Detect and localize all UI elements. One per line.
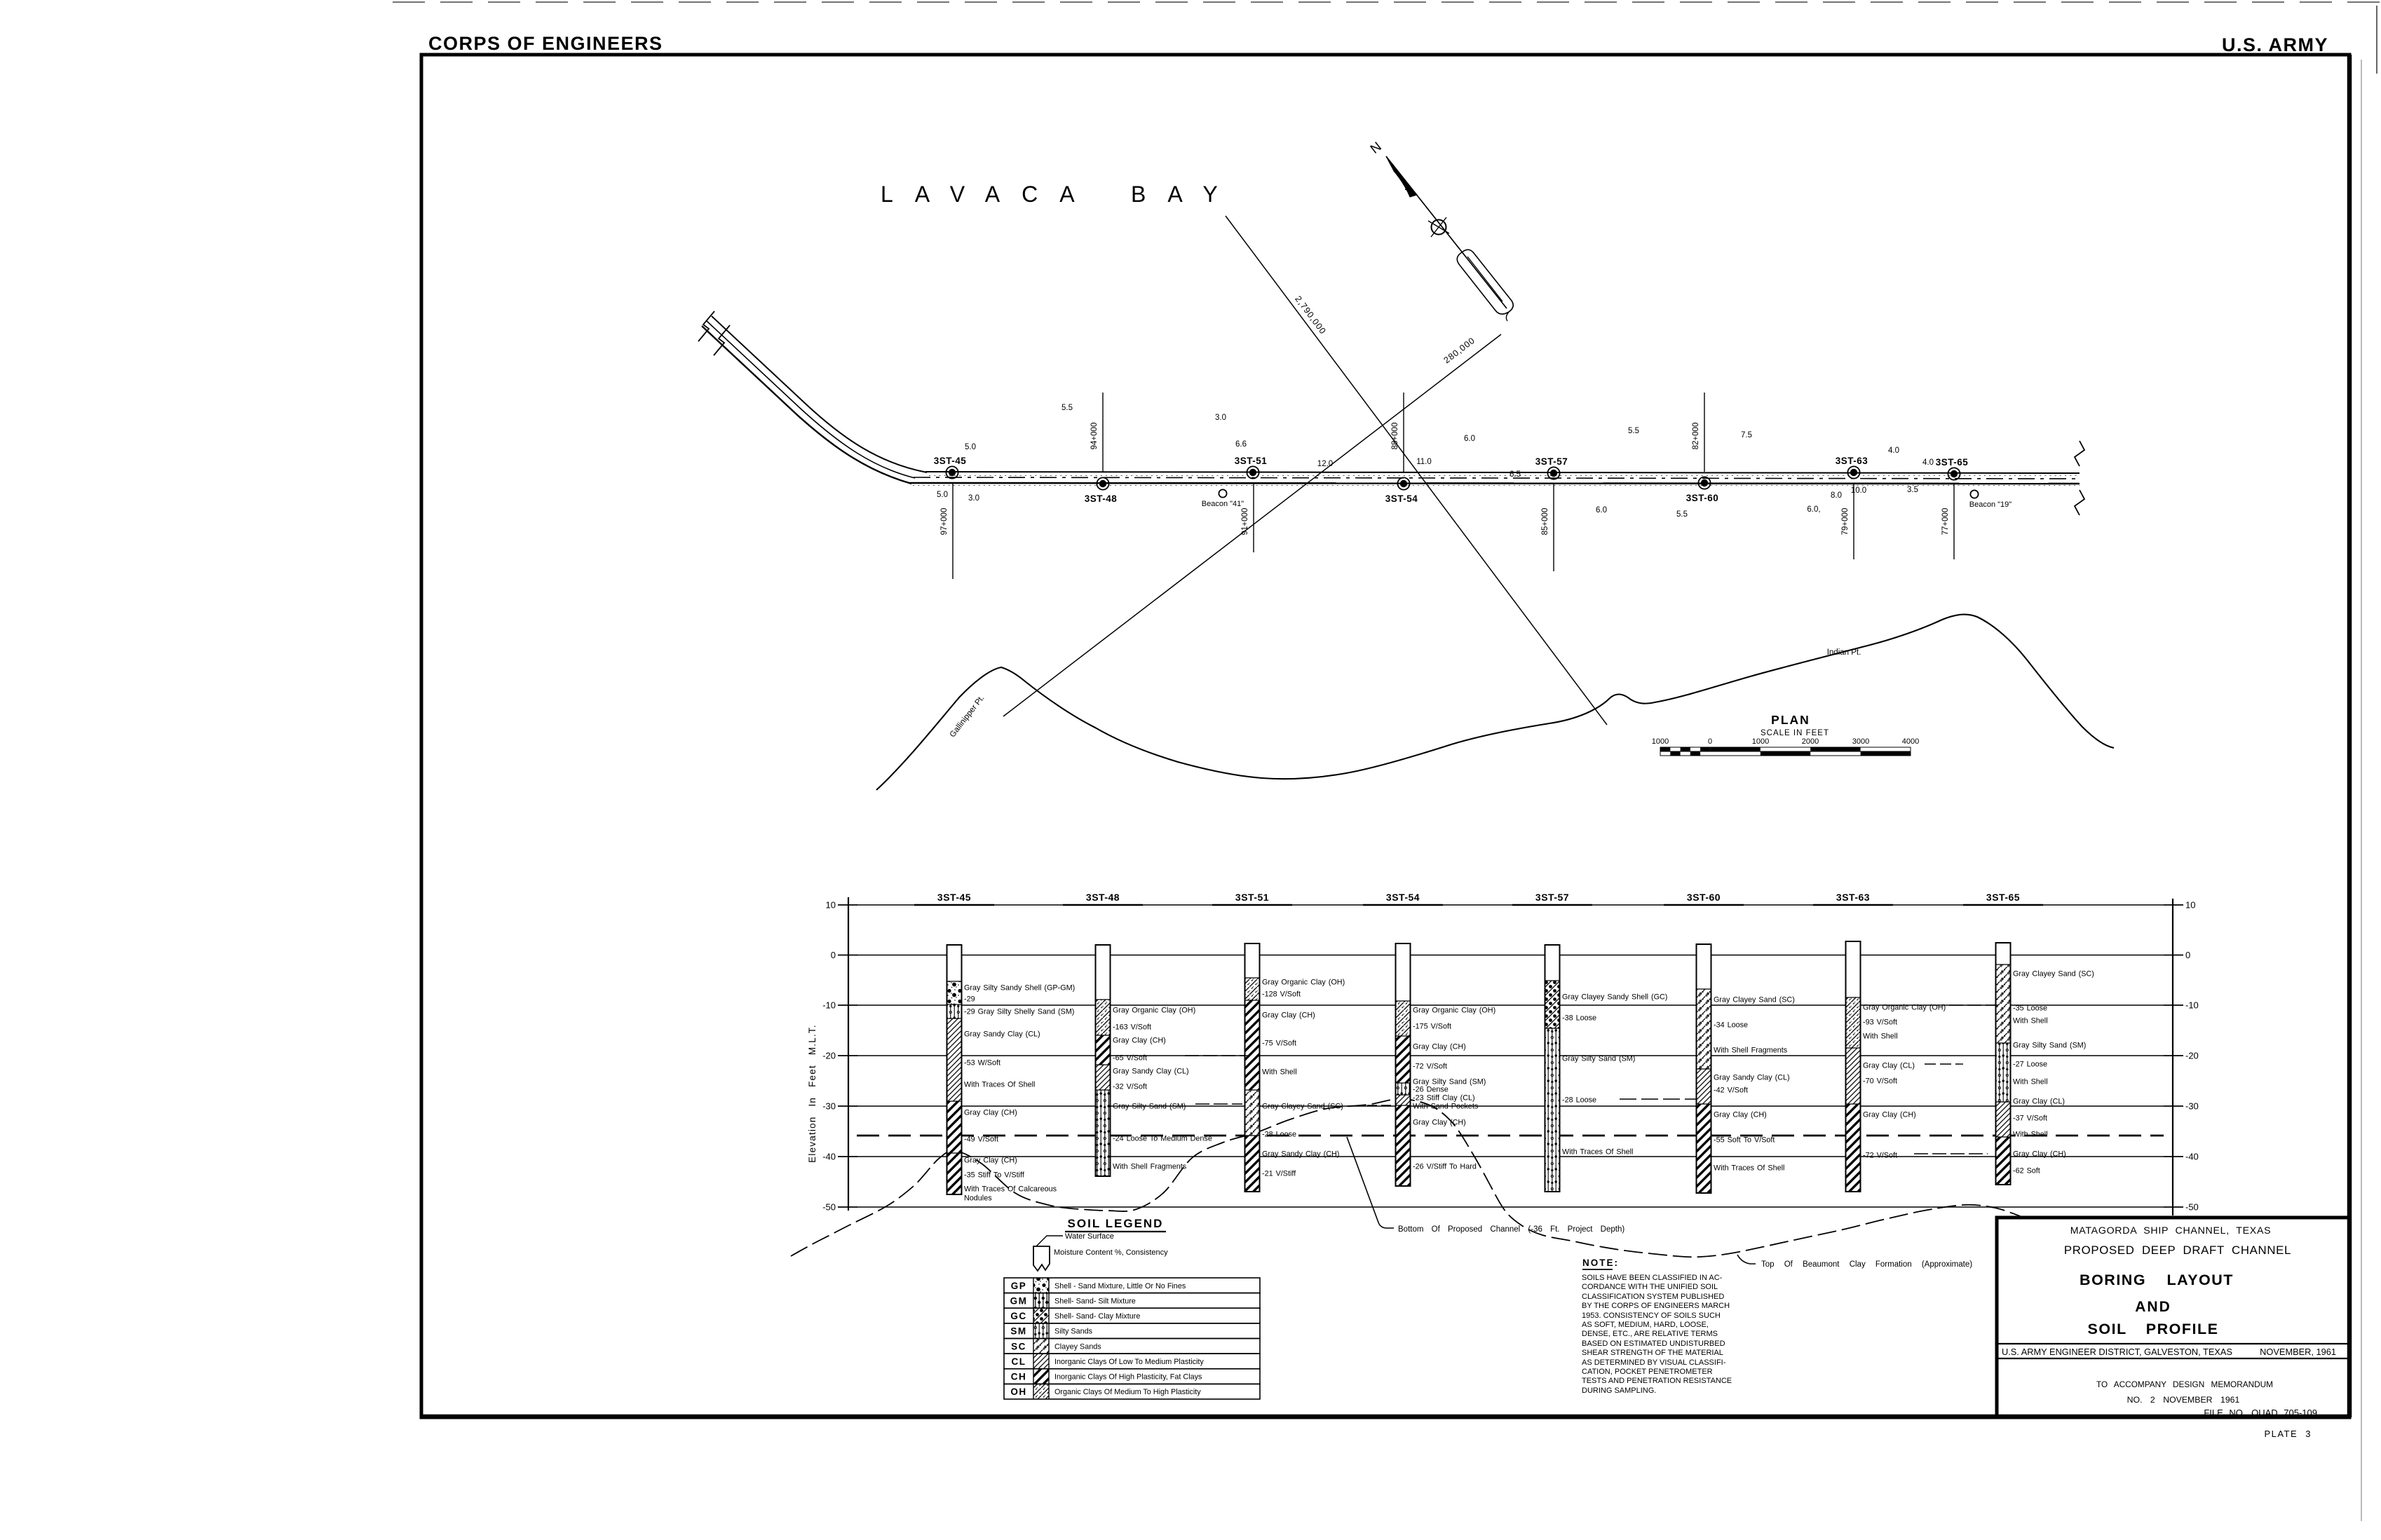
svg-text:79+000: 79+000 [1841,508,1850,536]
svg-text:3ST-45: 3ST-45 [937,892,971,903]
svg-text:TO ACCOMPANY DESIGN MEMO: TO ACCOMPANY DESIGN MEMORANDUM [2096,1379,2273,1389]
svg-text:3ST-57: 3ST-57 [1535,456,1568,467]
svg-text:-35 Loose: -35 Loose [2013,1004,2047,1013]
svg-text:11.0: 11.0 [1416,458,1432,466]
svg-text:-37 V/Soft: -37 V/Soft [2013,1115,2047,1123]
svg-text:Shell- Sand- Clay Mixture: Shell- Sand- Clay Mixture [1054,1312,1140,1321]
svg-text:FILE NO. QUAD 705-109: FILE NO. QUAD 705-109 [2204,1408,2317,1418]
svg-text:-24 Loose To Medium Dense: -24 Loose To Medium Dense [1113,1135,1212,1143]
svg-text:-38 Loose: -38 Loose [1562,1014,1596,1023]
svg-text:Gray Organic Clay (OH): Gray Organic Clay (OH) [1863,1004,1946,1012]
svg-text:GC: GC [1010,1311,1026,1321]
svg-text:CL: CL [1012,1356,1026,1367]
svg-text:AS DETERMINED BY VISUAL CLASSI: AS DETERMINED BY VISUAL CLASSIFI- [1582,1358,1726,1367]
svg-text:NOVEMBER, 1961: NOVEMBER, 1961 [2260,1347,2336,1357]
svg-text:Gray Clay (CH): Gray Clay (CH) [1413,1119,1466,1127]
svg-text:-10: -10 [2185,1000,2199,1011]
svg-text:5.0: 5.0 [965,443,976,451]
svg-text:-35 Stiff To V/Stiff: -35 Stiff To V/Stiff [964,1171,1025,1180]
svg-text:AND: AND [2135,1299,2171,1315]
svg-text:-20: -20 [822,1051,836,1061]
svg-text:-128 V/Soft: -128 V/Soft [1262,990,1301,999]
svg-text:5.0: 5.0 [937,491,948,499]
svg-text:5.5: 5.5 [1061,404,1073,412]
svg-text:-21 V/Stiff: -21 V/Stiff [1262,1170,1296,1178]
svg-text:Gray Sandy Clay (CH): Gray Sandy Clay (CH) [1262,1150,1339,1159]
svg-text:PROPOSED DEEP DRAFT CHANNEL: PROPOSED DEEP DRAFT CHANNEL [2064,1243,2291,1257]
svg-text:91+000: 91+000 [1241,508,1249,536]
svg-text:-53 W/Soft: -53 W/Soft [964,1059,1000,1068]
svg-text:With Shell: With Shell [2013,1131,2048,1139]
svg-text:-29: -29 [964,995,975,1004]
svg-text:NO. 2 NOVEMBER 1961: NO. 2 NOVEMBER 1961 [2127,1395,2240,1405]
svg-text:CORPS OF ENGINEERS: CORPS OF ENGINEERS [428,33,663,54]
svg-text:Organic Clays Of Medium: Organic Clays Of Medium To High Plastici… [1054,1388,1201,1396]
svg-text:-26 V/Stiff To Hard: -26 V/Stiff To Hard [1413,1163,1477,1171]
svg-text:-70 V/Soft: -70 V/Soft [1863,1077,1897,1086]
svg-text:-72 V/Soft: -72 V/Soft [1413,1063,1447,1071]
svg-text:3ST-45: 3ST-45 [934,456,967,466]
svg-text:Gray Clay (CH): Gray Clay (CH) [1262,1011,1315,1020]
svg-text:3ST-63: 3ST-63 [1836,456,1868,466]
svg-text:4000: 4000 [1902,737,1919,746]
svg-text:-28 Loose: -28 Loose [1262,1131,1296,1139]
svg-text:3.0: 3.0 [968,494,979,503]
svg-text:10.0: 10.0 [1851,486,1866,495]
svg-text:Shell - Sand Mixture, Little: Shell - Sand Mixture, Little Or No Fines [1054,1282,1186,1290]
svg-text:1000: 1000 [1652,737,1669,746]
svg-text:-65 V/Soft: -65 V/Soft [1113,1054,1147,1063]
svg-text:0: 0 [831,950,836,960]
svg-text:SC: SC [1011,1341,1026,1351]
svg-text:1000: 1000 [1752,737,1769,746]
svg-text:CH: CH [1011,1372,1027,1382]
svg-text:DURING SAMPLING.: DURING SAMPLING. [1582,1386,1656,1395]
svg-text:-50: -50 [822,1202,836,1213]
svg-text:PLATE 3: PLATE 3 [2264,1429,2312,1439]
svg-text:SOIL PROFILE: SOIL PROFILE [2088,1321,2219,1337]
svg-text:AS SOFT, MEDIUM, HARD, LOOS: AS SOFT, MEDIUM, HARD, LOOSE, [1582,1321,1709,1329]
svg-text:BY THE CORPS OF ENGINEERS MARC: BY THE CORPS OF ENGINEERS MARCH [1582,1302,1730,1310]
svg-text:3ST-51: 3ST-51 [1235,892,1269,903]
svg-text:Gray Silty Sand (SM): Gray Silty Sand (SM) [1113,1103,1186,1111]
svg-text:LAVACA: LAVACA [881,182,1097,207]
svg-text:10: 10 [2185,900,2195,911]
svg-text:-30: -30 [2185,1101,2199,1112]
svg-text:3ST-48: 3ST-48 [1085,493,1118,504]
svg-text:Gray Clayey Sandy Shell (G: Gray Clayey Sandy Shell (GC) [1562,993,1667,1002]
svg-text:3ST-60: 3ST-60 [1687,892,1721,903]
svg-text:With Shell: With Shell [1262,1068,1297,1077]
svg-text:8.0: 8.0 [1831,491,1842,500]
svg-text:Gray Organic Clay (OH): Gray Organic Clay (OH) [1262,979,1345,987]
svg-text:-29 Gray Silty Shelly Sand: -29 Gray Silty Shelly Sand (SM) [964,1008,1074,1016]
svg-text:Gray Clay (CH): Gray Clay (CH) [1413,1043,1466,1051]
svg-text:-20: -20 [2185,1051,2199,1061]
svg-text:94+000: 94+000 [1090,423,1099,450]
svg-text:12.0: 12.0 [1317,460,1333,468]
svg-text:Gray Clay (CH): Gray Clay (CH) [2013,1150,2066,1159]
svg-text:Gray Sandy Clay (CL): Gray Sandy Clay (CL) [1113,1068,1189,1076]
svg-text:-40: -40 [822,1152,836,1162]
svg-text:Gray Clayey Sand (SC): Gray Clayey Sand (SC) [1714,996,1795,1004]
svg-text:Gray Organic Clay (OH): Gray Organic Clay (OH) [1413,1007,1495,1015]
svg-text:BASED ON ESTIMATED UNDISTUR: BASED ON ESTIMATED UNDISTURBED [1582,1340,1725,1348]
svg-text:0: 0 [2185,950,2190,960]
svg-text:Beacon "19": Beacon "19" [1969,500,2012,509]
svg-text:4.0: 4.0 [1888,447,1899,455]
svg-text:-23 Stiff Clay (CL): -23 Stiff Clay (CL) [1413,1094,1475,1103]
svg-text:5.5: 5.5 [1628,427,1639,435]
svg-text:3ST-63: 3ST-63 [1836,892,1870,903]
svg-text:Gray Clay (CH): Gray Clay (CH) [1714,1111,1767,1119]
svg-text:MATAGORDA SHIP CHANNEL, TEXA: MATAGORDA SHIP CHANNEL, TEXAS [2070,1225,2272,1236]
svg-text:GM: GM [1010,1295,1028,1306]
svg-text:With Traces Of Shell: With Traces Of Shell [964,1081,1035,1089]
svg-text:-50: -50 [2185,1202,2199,1213]
svg-text:-28 Loose: -28 Loose [1562,1096,1596,1105]
svg-text:Gray Organic Clay (OH): Gray Organic Clay (OH) [1113,1007,1195,1015]
svg-text:Gray Sandy Clay (CL): Gray Sandy Clay (CL) [964,1030,1040,1039]
svg-text:Gray Clay (CL): Gray Clay (CL) [1863,1062,1915,1070]
svg-text:10: 10 [826,900,836,911]
svg-text:TESTS AND PENETRATION RESISTAN: TESTS AND PENETRATION RESISTANCE [1582,1377,1732,1385]
svg-text:1953. CONSISTENCY OF SOILS SUC: 1953. CONSISTENCY OF SOILS SUCH [1582,1311,1721,1320]
svg-text:6.0,: 6.0, [1807,505,1820,514]
svg-text:SHEAR STRENGTH OF THE MATERIAL: SHEAR STRENGTH OF THE MATERIAL [1582,1349,1723,1357]
svg-text:3ST-57: 3ST-57 [1535,892,1569,903]
svg-text:U.S. ARMY ENGINEER DISTRICT: U.S. ARMY ENGINEER DISTRICT, GALVESTON, … [2002,1347,2232,1357]
svg-text:-27 Loose: -27 Loose [2013,1061,2047,1069]
svg-text:Beacon "41": Beacon "41" [1202,500,1244,508]
svg-text:CORDANCE WITH THE UNIFIED SOIL: CORDANCE WITH THE UNIFIED SOIL [1582,1283,1718,1291]
svg-text:Gray Clay (CH): Gray Clay (CH) [1863,1111,1916,1119]
svg-text:CLASSIFICATION SYSTEM PUBLIS: CLASSIFICATION SYSTEM PUBLISHED [1582,1293,1724,1301]
svg-text:3ST-54: 3ST-54 [1385,493,1418,504]
svg-text:3ST-65: 3ST-65 [1986,892,2020,903]
svg-text:-26 Dense: -26 Dense [1413,1086,1449,1094]
svg-text:With Shell Fragments: With Shell Fragments [1113,1163,1187,1171]
svg-text:5.5: 5.5 [1676,510,1688,519]
svg-text:82+000: 82+000 [1692,423,1700,450]
svg-text:-40: -40 [2185,1152,2199,1162]
svg-text:3ST-54: 3ST-54 [1386,892,1420,903]
svg-text:88+000: 88+000 [1391,423,1399,450]
svg-text:3ST-51: 3ST-51 [1235,456,1268,466]
svg-text:Gray Clayey Sand (SC): Gray Clayey Sand (SC) [2013,970,2094,979]
svg-text:7.5: 7.5 [1741,431,1752,439]
svg-text:GP: GP [1011,1281,1027,1291]
svg-text:SCALE IN FEET: SCALE IN FEET [1761,729,1829,737]
svg-text:Gray Clayey Sand (SC): Gray Clayey Sand (SC) [1262,1103,1343,1111]
svg-text:Gray Silty Sand (SM): Gray Silty Sand (SM) [1562,1055,1635,1063]
svg-text:DENSE, ETC., ARE RELATIVE TERM: DENSE, ETC., ARE RELATIVE TERMS [1582,1330,1718,1338]
svg-text:-10: -10 [822,1000,836,1011]
svg-text:Nodules: Nodules [964,1194,992,1203]
svg-text:3.5: 3.5 [1907,486,1918,494]
svg-text:85+000: 85+000 [1541,508,1549,536]
svg-text:Moisture Content %, Consisten: Moisture Content %, Consistency [1054,1248,1168,1257]
svg-text:-93 V/Soft: -93 V/Soft [1863,1018,1897,1027]
svg-text:6.5: 6.5 [1510,470,1521,479]
svg-text:Top Of Beaumont Clay Forma: Top Of Beaumont Clay Formation (Approxim… [1761,1260,1972,1269]
svg-text:77+000: 77+000 [1941,508,1950,536]
svg-text:CATION, POCKET PENETROMETER: CATION, POCKET PENETROMETER [1582,1368,1713,1376]
svg-text:-32 V/Soft: -32 V/Soft [1113,1083,1147,1091]
svg-text:Inorganic Clays Of Low T: Inorganic Clays Of Low To Medium Plastic… [1054,1358,1204,1366]
svg-text:-75 V/Soft: -75 V/Soft [1262,1040,1296,1048]
svg-text:With Shell Fragments: With Shell Fragments [1714,1047,1788,1055]
svg-text:Gray Clay (CL): Gray Clay (CL) [2013,1098,2065,1106]
svg-text:PLAN: PLAN [1771,713,1810,727]
svg-text:Inorganic Clays Of High: Inorganic Clays Of High Plasticity, Fat … [1054,1373,1202,1382]
svg-text:SM: SM [1010,1326,1026,1337]
svg-text:With Shell: With Shell [1863,1033,1898,1041]
svg-text:With Shell: With Shell [2013,1017,2048,1025]
svg-text:97+000: 97+000 [940,508,949,536]
svg-text:-42 V/Soft: -42 V/Soft [1714,1086,1748,1095]
svg-text:Elevation In Feet M.L.T.: Elevation In Feet M.L.T. [807,1024,818,1163]
svg-text:Clayey Sands: Clayey Sands [1054,1342,1101,1351]
svg-text:4.0: 4.0 [1922,458,1934,467]
svg-text:2000: 2000 [1802,737,1819,746]
svg-text:BAY: BAY [1131,182,1240,207]
svg-text:Gray Silty Sandy Shell (GP: Gray Silty Sandy Shell (GP-GM) [964,984,1075,993]
svg-text:Water Surface: Water Surface [1065,1232,1114,1241]
svg-text:-62 Soft: -62 Soft [2013,1167,2040,1176]
svg-text:Gray Clay (CH): Gray Clay (CH) [1113,1037,1166,1045]
svg-text:SOILS HAVE BEEN CLASSIFIED IN: SOILS HAVE BEEN CLASSIFIED IN AC- [1582,1274,1723,1282]
svg-text:With Sand Pockets: With Sand Pockets [1413,1103,1479,1111]
svg-text:6.6: 6.6 [1235,440,1247,449]
svg-text:Silty Sands: Silty Sands [1054,1328,1093,1336]
svg-text:With Traces Of Shell: With Traces Of Shell [1562,1148,1633,1157]
svg-text:SOIL LEGEND: SOIL LEGEND [1068,1217,1164,1230]
svg-text:With Shell: With Shell [2013,1078,2048,1086]
svg-text:-34 Loose: -34 Loose [1714,1021,1748,1030]
svg-text:Gray Sandy Clay (CL): Gray Sandy Clay (CL) [1714,1074,1790,1082]
svg-text:-55 Soft To V/Soft: -55 Soft To V/Soft [1714,1136,1775,1145]
svg-text:3.0: 3.0 [1215,414,1226,422]
svg-text:6.0: 6.0 [1596,506,1607,515]
svg-text:3ST-65: 3ST-65 [1936,457,1969,468]
svg-text:-30: -30 [822,1101,836,1112]
svg-text:BORING LAYOUT: BORING LAYOUT [2080,1272,2234,1288]
svg-text:With Traces Of Calcareous: With Traces Of Calcareous [964,1185,1057,1194]
svg-text:Indian Pt.: Indian Pt. [1827,648,1861,657]
svg-text:-49 V/Soft: -49 V/Soft [964,1136,998,1144]
svg-text:With Traces Of Shell: With Traces Of Shell [1714,1164,1784,1173]
svg-text:6.0: 6.0 [1464,435,1475,443]
svg-text:3ST-60: 3ST-60 [1686,493,1719,503]
svg-text:Gray Silty Sand (SM): Gray Silty Sand (SM) [2013,1042,2086,1050]
svg-text:3000: 3000 [1852,737,1869,746]
svg-text:OH: OH [1010,1386,1026,1397]
svg-text:Gray Clay (CH): Gray Clay (CH) [964,1157,1017,1165]
svg-text:Shell- Sand- Silt Mixture: Shell- Sand- Silt Mixture [1054,1297,1136,1305]
svg-text:-163 V/Soft: -163 V/Soft [1113,1023,1151,1032]
svg-text:NOTE:: NOTE: [1582,1258,1619,1268]
svg-text:Gray Clay (CH): Gray Clay (CH) [964,1109,1017,1117]
svg-text:0: 0 [1708,737,1712,746]
svg-text:-175 V/Soft: -175 V/Soft [1413,1023,1451,1031]
svg-text:U.S. ARMY: U.S. ARMY [2222,34,2328,55]
svg-text:-72 V/Soft: -72 V/Soft [1863,1152,1897,1160]
svg-text:3ST-48: 3ST-48 [1086,892,1120,903]
svg-text:Bottom Of Proposed Channel: Bottom Of Proposed Channel (-36 Ft. Proj… [1398,1225,1624,1234]
